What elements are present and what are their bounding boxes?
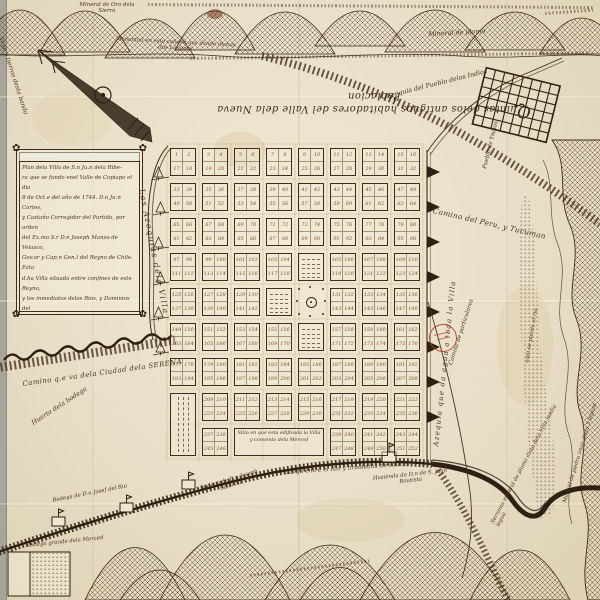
quinta-number: 131: [331, 289, 343, 302]
quinta-number: 202: [311, 372, 323, 385]
quinta-number: 69: [235, 219, 247, 232]
quinta-number: 221: [395, 394, 407, 407]
illegible-script-line: [302, 264, 320, 265]
quinta-number: 87: [267, 232, 279, 245]
quinta-number: 158: [343, 324, 355, 337]
quinta-number: 215: [299, 394, 311, 407]
quinta-number: 241: [363, 429, 375, 442]
quinta-number: 2: [183, 149, 195, 162]
plaza-fountain: [306, 297, 317, 308]
illegible-script-line: [302, 277, 320, 278]
city-block: 105106119120: [330, 253, 356, 281]
city-block: 161162175176: [394, 323, 420, 351]
city-block: 189190205206: [362, 358, 388, 386]
city-block: 11122728: [330, 148, 356, 176]
quinta-number: 64: [407, 197, 419, 210]
quinta-number: 196: [215, 372, 227, 385]
quinta-number: 110: [407, 254, 419, 267]
quinta-number: 248: [343, 442, 355, 455]
quinta-number: 197: [235, 372, 247, 385]
quinta-number: 45: [363, 184, 375, 197]
city-block: 73748990: [298, 218, 324, 246]
quinta-number: 178: [183, 359, 195, 372]
city-block: 135136147148: [394, 288, 420, 316]
quinta-number: 200: [279, 372, 291, 385]
illegible-script-line: [302, 338, 320, 339]
quinta-number: 12: [343, 149, 355, 162]
city-block: 9102526: [298, 148, 324, 176]
city-block: 41425758: [298, 183, 324, 211]
quinta-number: 50: [183, 197, 195, 210]
city-block: 109110123124: [394, 253, 420, 281]
illegible-script-line: [270, 294, 288, 295]
quinta-number: 194: [183, 372, 195, 385]
quinta-number: 235: [395, 407, 407, 420]
quinta-number: 95: [395, 232, 407, 245]
city-block: 65668182: [170, 218, 196, 246]
quinta-number: 139: [203, 302, 215, 315]
quinta-number: 145: [363, 302, 375, 315]
city-block: 67688384: [202, 218, 228, 246]
quinta-number: 171: [331, 337, 343, 350]
plaza-marker-dot: [322, 313, 324, 315]
quinta-number: 164: [183, 337, 195, 350]
quinta-number: 40: [279, 184, 291, 197]
quinta-number: 86: [247, 232, 259, 245]
plaza-marker-dot: [296, 300, 298, 302]
quinta-number: 154: [247, 324, 259, 337]
quinta-number: 187: [331, 359, 343, 372]
city-block: 239240247248: [330, 428, 356, 456]
illegible-script-line: [302, 273, 320, 274]
quinta-number: 33: [171, 184, 183, 197]
inscribed-block: [298, 253, 324, 281]
city-block: 131132143144: [330, 288, 356, 316]
city-block: 155156169170: [266, 323, 292, 351]
quinta-number: 117: [267, 267, 279, 280]
quinta-number: 151: [203, 324, 215, 337]
quinta-number: 184: [279, 359, 291, 372]
city-block: 185186201202: [298, 358, 324, 386]
city-block: 209210223224: [202, 393, 228, 421]
quinta-number: 125: [171, 289, 183, 302]
quinta-number: 56: [279, 197, 291, 210]
quinta-number: 105: [331, 254, 343, 267]
quinta-number: 26: [311, 162, 323, 175]
city-block: 562122: [234, 148, 260, 176]
quinta-number: 71: [267, 219, 279, 232]
quinta-number: 111: [171, 267, 183, 280]
quinta-number: 48: [407, 184, 419, 197]
quinta-number: 129: [235, 289, 247, 302]
quinta-number: 128: [215, 289, 227, 302]
quinta-number: 143: [331, 302, 343, 315]
illegible-script-line: [302, 329, 320, 330]
quinta-number: 91: [331, 232, 343, 245]
quinta-number: 177: [171, 359, 183, 372]
quinta-number: 232: [343, 407, 355, 420]
plaza-marker-dot: [298, 313, 300, 315]
city-block: 37385354: [234, 183, 260, 211]
quinta-number: 106: [343, 254, 355, 267]
quinta-number: 133: [363, 289, 375, 302]
city-block: 243244251252: [394, 428, 420, 456]
quinta-number: 220: [375, 394, 387, 407]
illegible-script-line: [302, 347, 320, 348]
quinta-number: 6: [247, 149, 259, 162]
quinta-number: 198: [247, 372, 259, 385]
quinta-number: 189: [363, 359, 375, 372]
city-block: 35365152: [202, 183, 228, 211]
quinta-number: 109: [395, 254, 407, 267]
quinta-number: 211: [235, 394, 247, 407]
city-block: 47486364: [394, 183, 420, 211]
quinta-number: 167: [235, 337, 247, 350]
quinta-number: 42: [311, 184, 323, 197]
illegible-script-line: [302, 268, 320, 269]
quinta-number: 201: [299, 372, 311, 385]
quinta-number: 34: [183, 184, 195, 197]
quinta-number: 179: [203, 359, 215, 372]
quinta-number: 150: [183, 324, 195, 337]
city-block: 237238245246: [202, 428, 228, 456]
quinta-number: 22: [247, 162, 259, 175]
quinta-number: 126: [183, 289, 195, 302]
city-block: 149150163164: [170, 323, 196, 351]
city-block: 33344950: [170, 183, 196, 211]
quinta-number: 175: [395, 337, 407, 350]
quinta-number: 238: [215, 429, 227, 442]
quinta-number: 136: [407, 289, 419, 302]
quinta-number: 113: [203, 267, 215, 280]
quinta-number: 35: [203, 184, 215, 197]
city-block: 181182197198: [234, 358, 260, 386]
quinta-number: 49: [171, 197, 183, 210]
illegible-script-line: [178, 397, 179, 452]
plaza-marker-dot: [298, 288, 300, 290]
city-block: 341920: [202, 148, 228, 176]
city-block: 183184199200: [266, 358, 292, 386]
quinta-number: 239: [331, 429, 343, 442]
quinta-number: 130: [247, 289, 259, 302]
quinta-number: 148: [407, 302, 419, 315]
quinta-number: 5: [235, 149, 247, 162]
quinta-number: 73: [299, 219, 311, 232]
quinta-number: 132: [343, 289, 355, 302]
quinta-number: 116: [247, 267, 259, 280]
quinta-number: 20: [215, 162, 227, 175]
quinta-number: 240: [343, 429, 355, 442]
quinta-number: 213: [267, 394, 279, 407]
quinta-number: 100: [215, 254, 227, 267]
city-block: 177178193194: [170, 358, 196, 386]
city-block: 107108121122: [362, 253, 388, 281]
city-block: 43445960: [330, 183, 356, 211]
quinta-number: 224: [215, 407, 227, 420]
city-block: 217218231232: [330, 393, 356, 421]
quinta-number: 51: [203, 197, 215, 210]
quinta-number: 157: [331, 324, 343, 337]
quinta-number: 17: [171, 162, 183, 175]
city-block: 151152165166: [202, 323, 228, 351]
city-block: 153154167168: [234, 323, 260, 351]
quinta-number: 243: [395, 429, 407, 442]
city-block: 71728788: [266, 218, 292, 246]
quinta-number: 203: [331, 372, 343, 385]
quinta-number: 219: [363, 394, 375, 407]
quinta-number: 237: [203, 429, 215, 442]
quinta-number: 80: [407, 219, 419, 232]
city-block: 221222235236: [394, 393, 420, 421]
quinta-number: 169: [267, 337, 279, 350]
quinta-number: 236: [407, 407, 419, 420]
quinta-number: 27: [331, 162, 343, 175]
quinta-number: 29: [363, 162, 375, 175]
quinta-number: 120: [343, 267, 355, 280]
quinta-number: 212: [247, 394, 259, 407]
quinta-number: 60: [343, 197, 355, 210]
quinta-number: 81: [171, 232, 183, 245]
quinta-number: 39: [267, 184, 279, 197]
quinta-number: 84: [215, 232, 227, 245]
quinta-number: 193: [171, 372, 183, 385]
quinta-number: 166: [215, 337, 227, 350]
city-block: 241242249250: [362, 428, 388, 456]
sitio-block: Sitio en que esta edificada la Villa y c…: [234, 428, 324, 456]
quinta-number: 52: [215, 197, 227, 210]
quinta-number: 228: [279, 407, 291, 420]
quinta-number: 246: [215, 442, 227, 455]
quinta-number: 31: [395, 162, 407, 175]
quinta-number: 4: [215, 149, 227, 162]
quinta-number: 55: [267, 197, 279, 210]
illegible-script-line: [188, 397, 189, 452]
city-block: 129130141142: [234, 288, 260, 316]
city-block: 179180195196: [202, 358, 228, 386]
quinta-number: 76: [343, 219, 355, 232]
city-block: 187188203204: [330, 358, 356, 386]
city-block: 13142930: [362, 148, 388, 176]
quinta-number: 115: [235, 267, 247, 280]
illegible-script-line: [270, 303, 288, 304]
quinta-number: 107: [363, 254, 375, 267]
quinta-number: 190: [375, 359, 387, 372]
quinta-number: 16: [407, 149, 419, 162]
inscribed-block: [298, 323, 324, 351]
quinta-number: 205: [363, 372, 375, 385]
city-block: 101102115116: [234, 253, 260, 281]
quinta-number: 214: [279, 394, 291, 407]
city-block: 191192207208: [394, 358, 420, 386]
quinta-number: 191: [395, 359, 407, 372]
quinta-number: 63: [395, 197, 407, 210]
city-block: 782324: [266, 148, 292, 176]
quinta-number: 252: [407, 442, 419, 455]
quinta-number: 8: [279, 149, 291, 162]
quinta-number: 244: [407, 429, 419, 442]
illegible-script-line: [302, 259, 320, 260]
quinta-number: 53: [235, 197, 247, 210]
quinta-number: 155: [267, 324, 279, 337]
city-grid: 1217183419205621227823249102526111227281…: [0, 0, 600, 600]
quinta-number: 188: [343, 359, 355, 372]
quinta-number: 160: [375, 324, 387, 337]
quinta-number: 11: [331, 149, 343, 162]
plaza-marker-dot: [324, 300, 326, 302]
quinta-number: 30: [375, 162, 387, 175]
quinta-number: 124: [407, 267, 419, 280]
quinta-number: 162: [407, 324, 419, 337]
quinta-number: 10: [311, 149, 323, 162]
quinta-number: 183: [267, 359, 279, 372]
quinta-number: 89: [299, 232, 311, 245]
illegible-script-line: [270, 308, 288, 309]
quinta-number: 43: [331, 184, 343, 197]
quinta-number: 210: [215, 394, 227, 407]
quinta-number: 68: [215, 219, 227, 232]
quinta-number: 226: [247, 407, 259, 420]
quinta-number: 62: [375, 197, 387, 210]
sitio-block-text: Sitio en que esta edificada la Villa y c…: [237, 430, 321, 445]
quinta-number: 176: [407, 337, 419, 350]
quinta-number: 9: [299, 149, 311, 162]
quinta-number: 127: [203, 289, 215, 302]
quinta-number: 77: [363, 219, 375, 232]
quinta-number: 140: [215, 302, 227, 315]
quinta-number: 94: [375, 232, 387, 245]
plaza-marker-dot: [309, 315, 311, 317]
quinta-number: 101: [235, 254, 247, 267]
quinta-number: 65: [171, 219, 183, 232]
quinta-number: 245: [203, 442, 215, 455]
quinta-number: 165: [203, 337, 215, 350]
quinta-number: 46: [375, 184, 387, 197]
illegible-script-line: [270, 299, 288, 300]
quinta-number: 90: [311, 232, 323, 245]
quinta-number: 23: [267, 162, 279, 175]
quinta-number: 38: [247, 184, 259, 197]
city-block: 159160173174: [362, 323, 388, 351]
quinta-number: 156: [279, 324, 291, 337]
quinta-number: 135: [395, 289, 407, 302]
quinta-number: 231: [331, 407, 343, 420]
quinta-number: 149: [171, 324, 183, 337]
quinta-number: 96: [407, 232, 419, 245]
quinta-number: 122: [375, 267, 387, 280]
quinta-number: 137: [171, 302, 183, 315]
city-block: 69708586: [234, 218, 260, 246]
quinta-number: 182: [247, 359, 259, 372]
quinta-number: 174: [375, 337, 387, 350]
city-block: 219220233234: [362, 393, 388, 421]
quinta-number: 146: [375, 302, 387, 315]
quinta-number: 75: [331, 219, 343, 232]
city-block: 39405556: [266, 183, 292, 211]
quinta-number: 217: [331, 394, 343, 407]
quinta-number: 234: [375, 407, 387, 420]
quinta-number: 72: [279, 219, 291, 232]
quinta-number: 15: [395, 149, 407, 162]
quinta-number: 152: [215, 324, 227, 337]
quinta-number: 223: [203, 407, 215, 420]
quinta-number: 121: [363, 267, 375, 280]
quinta-number: 28: [343, 162, 355, 175]
quinta-number: 118: [279, 267, 291, 280]
quinta-number: 19: [203, 162, 215, 175]
quinta-number: 92: [343, 232, 355, 245]
city-block: 213214227228: [266, 393, 292, 421]
quinta-number: 159: [363, 324, 375, 337]
quinta-number: 206: [375, 372, 387, 385]
quinta-number: 3: [203, 149, 215, 162]
quinta-number: 24: [279, 162, 291, 175]
city-block: 99100113114: [202, 253, 228, 281]
quinta-number: 58: [311, 197, 323, 210]
quinta-number: 14: [375, 149, 387, 162]
quinta-number: 41: [299, 184, 311, 197]
city-block: 79809596: [394, 218, 420, 246]
quinta-number: 170: [279, 337, 291, 350]
quinta-number: 1: [171, 149, 183, 162]
city-block: 75769192: [330, 218, 356, 246]
quinta-number: 173: [363, 337, 375, 350]
quinta-number: 70: [247, 219, 259, 232]
quinta-number: 66: [183, 219, 195, 232]
quinta-number: 32: [407, 162, 419, 175]
quinta-number: 104: [279, 254, 291, 267]
quinta-number: 97: [171, 254, 183, 267]
map-canvas: Quintas delos antiguos habitadores del V…: [0, 0, 600, 600]
quinta-number: 142: [247, 302, 259, 315]
city-block: 103104117118: [266, 253, 292, 281]
quinta-number: 79: [395, 219, 407, 232]
quinta-number: 7: [267, 149, 279, 162]
quinta-number: 102: [247, 254, 259, 267]
quinta-number: 112: [183, 267, 195, 280]
city-block: 211212225226: [234, 393, 260, 421]
quinta-number: 247: [331, 442, 343, 455]
quinta-number: 138: [183, 302, 195, 315]
inscribed-block: [266, 288, 292, 316]
quinta-number: 242: [375, 429, 387, 442]
quinta-number: 98: [183, 254, 195, 267]
quinta-number: 54: [247, 197, 259, 210]
quinta-number: 251: [395, 442, 407, 455]
quinta-number: 249: [363, 442, 375, 455]
quinta-number: 13: [363, 149, 375, 162]
quinta-number: 18: [183, 162, 195, 175]
illegible-script-line: [302, 343, 320, 344]
quinta-number: 163: [171, 337, 183, 350]
inscribed-block-tall: [170, 393, 196, 456]
quinta-number: 44: [343, 184, 355, 197]
quinta-number: 59: [331, 197, 343, 210]
city-block: 77789394: [362, 218, 388, 246]
quinta-number: 25: [299, 162, 311, 175]
quinta-number: 207: [395, 372, 407, 385]
quinta-number: 141: [235, 302, 247, 315]
quinta-number: 233: [363, 407, 375, 420]
quinta-number: 195: [203, 372, 215, 385]
city-block: 121718: [170, 148, 196, 176]
quinta-number: 103: [267, 254, 279, 267]
quinta-number: 93: [363, 232, 375, 245]
quinta-number: 225: [235, 407, 247, 420]
quinta-number: 57: [299, 197, 311, 210]
illegible-script-line: [270, 312, 288, 313]
quinta-number: 250: [375, 442, 387, 455]
quinta-number: 153: [235, 324, 247, 337]
